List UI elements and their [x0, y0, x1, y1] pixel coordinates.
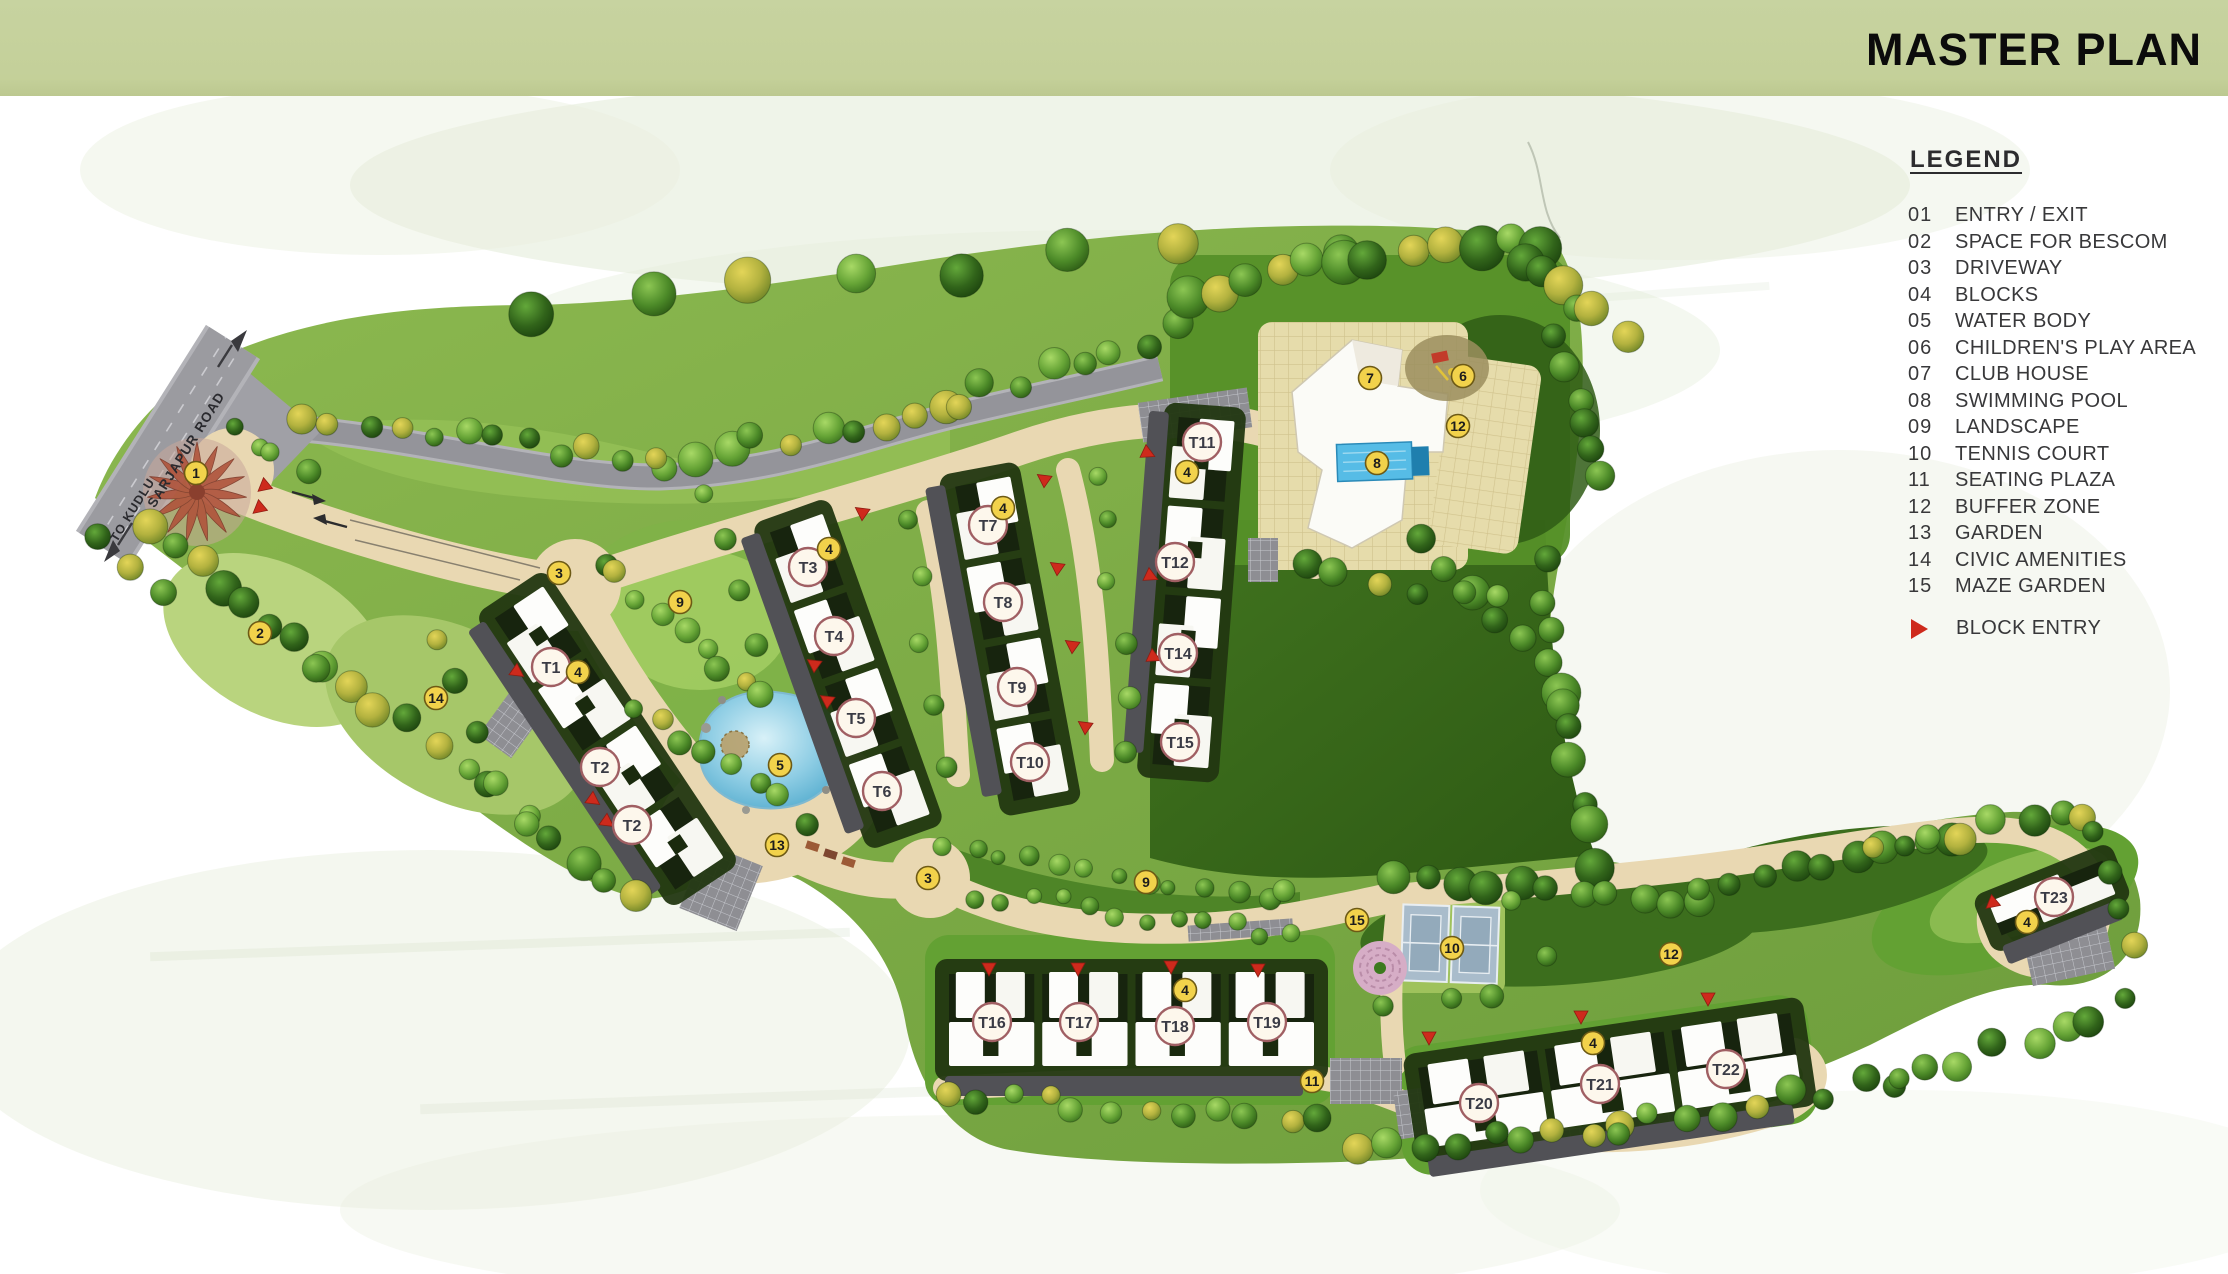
tree: [1412, 1134, 1439, 1161]
tree: [1542, 324, 1566, 348]
legend-item-number: 06: [1908, 337, 1955, 360]
legend-item: 11SEATING PLAZA: [1908, 469, 2223, 496]
block-entry-arrow-icon: [1911, 619, 1928, 639]
tower-marker-T19: T19: [1248, 1003, 1286, 1041]
tree: [1813, 1089, 1834, 1110]
tree: [425, 428, 443, 446]
tree: [843, 421, 865, 443]
svg-text:T2: T2: [591, 760, 610, 777]
svg-text:11: 11: [1305, 1073, 1320, 1089]
tree: [1398, 235, 1429, 266]
tree: [1097, 573, 1114, 590]
tree: [704, 656, 729, 681]
tree: [1046, 228, 1089, 271]
tree: [737, 422, 763, 448]
legend-item-number: 11: [1908, 469, 1955, 492]
tree: [1158, 224, 1198, 264]
tower-marker-T6: T6: [863, 772, 901, 810]
legend-item-number: 14: [1908, 549, 1955, 572]
tree: [1105, 908, 1123, 926]
tree: [466, 721, 488, 743]
legend-item-number: 15: [1908, 575, 1955, 598]
svg-text:7: 7: [1366, 370, 1374, 386]
tree: [117, 554, 143, 580]
svg-text:T14: T14: [1164, 646, 1192, 663]
tree: [1853, 1064, 1880, 1091]
tree: [668, 731, 692, 755]
tree: [1140, 915, 1156, 931]
tree: [1075, 859, 1093, 877]
svg-text:T11: T11: [1189, 435, 1216, 452]
tree: [1010, 377, 1031, 398]
tree: [361, 416, 382, 437]
tree: [965, 369, 993, 397]
tree: [1754, 865, 1777, 888]
tree: [1469, 871, 1503, 905]
tree: [1058, 1098, 1082, 1122]
legend-item: 15MAZE GARDEN: [1908, 575, 2223, 602]
tree: [612, 450, 633, 471]
tree: [873, 414, 900, 441]
legend-item: 04BLOCKS: [1908, 284, 2223, 311]
tree: [393, 704, 421, 732]
tree: [1480, 984, 1504, 1008]
tree: [1142, 1102, 1160, 1120]
header-band: MASTER PLAN: [0, 0, 2228, 96]
numbered-marker-8: 8: [1366, 452, 1389, 475]
tree: [1487, 585, 1509, 607]
tower-marker-T10: T10: [1011, 743, 1049, 781]
maze-garden: [1353, 941, 1407, 995]
tree: [1510, 625, 1536, 651]
tree: [1637, 1103, 1658, 1124]
tree: [1273, 880, 1295, 902]
tree: [1118, 687, 1141, 710]
tree: [692, 740, 716, 764]
tree: [1502, 891, 1521, 910]
legend-item: 01ENTRY / EXIT: [1908, 204, 2223, 231]
svg-text:10: 10: [1444, 940, 1460, 956]
tree: [992, 895, 1009, 912]
numbered-marker-12: 12: [1447, 415, 1470, 438]
legend-item-label: BUFFER ZONE: [1955, 496, 2101, 519]
tower-marker-T17: T17: [1060, 1003, 1098, 1041]
tree: [2108, 898, 2129, 919]
tree: [653, 709, 674, 730]
tree: [909, 634, 928, 653]
legend-item-label: WATER BODY: [1955, 310, 2091, 333]
svg-text:4: 4: [1181, 982, 1189, 998]
svg-text:8: 8: [1373, 455, 1381, 471]
numbered-marker-11: 11: [1301, 1070, 1324, 1093]
tree: [813, 412, 844, 443]
tree: [228, 587, 259, 618]
tree: [2122, 932, 2148, 958]
numbered-marker-13: 13: [766, 834, 789, 857]
legend-item-number: 07: [1908, 363, 1955, 386]
tower-marker-T18: T18: [1156, 1007, 1194, 1045]
tree: [1042, 1086, 1060, 1104]
svg-text:12: 12: [1450, 418, 1466, 434]
numbered-marker-6: 6: [1452, 365, 1475, 388]
tree: [1342, 1134, 1373, 1165]
svg-text:4: 4: [1183, 464, 1191, 480]
tree: [1593, 881, 1617, 905]
svg-text:3: 3: [924, 870, 932, 886]
tree: [1657, 891, 1684, 918]
tree: [946, 394, 971, 419]
tree: [536, 826, 560, 850]
tree: [355, 693, 389, 727]
tree: [1049, 854, 1070, 875]
tree: [1442, 988, 1462, 1008]
svg-text:9: 9: [676, 594, 684, 610]
tower-marker-T12: T12: [1156, 543, 1194, 581]
tree: [1944, 823, 1976, 855]
tree: [1613, 321, 1644, 352]
tree: [261, 443, 279, 461]
svg-text:15: 15: [1349, 912, 1365, 928]
tree: [1089, 467, 1107, 485]
tower-marker-T9: T9: [998, 668, 1036, 706]
svg-text:T10: T10: [1016, 755, 1044, 772]
tree: [2115, 988, 2135, 1008]
numbered-marker-9: 9: [1135, 871, 1158, 894]
legend-item: 10TENNIS COURT: [1908, 443, 2223, 470]
legend-item-label: CHILDREN'S PLAY AREA: [1955, 337, 2196, 360]
svg-text:T23: T23: [2040, 890, 2068, 907]
tree: [1607, 1123, 1630, 1146]
legend-item-number: 05: [1908, 310, 1955, 333]
svg-text:13: 13: [769, 837, 785, 853]
numbered-marker-12: 12: [1660, 943, 1683, 966]
tree: [837, 254, 876, 293]
master-plan-page: T1T2T2T3T4T5T6T7T8T9T10T11T12T14T15T16T1…: [0, 0, 2228, 1274]
tree: [573, 433, 599, 459]
tree: [1533, 876, 1558, 901]
tree: [1976, 805, 2006, 835]
tree: [1303, 1104, 1331, 1132]
tree: [745, 634, 768, 657]
tree: [715, 528, 737, 550]
tree: [1674, 1105, 1700, 1131]
tree: [625, 591, 644, 610]
tree: [1631, 885, 1659, 913]
tree: [603, 560, 626, 583]
svg-text:T1: T1: [542, 660, 561, 677]
numbered-marker-4: 4: [567, 661, 590, 684]
tree: [509, 292, 554, 337]
svg-text:4: 4: [2023, 914, 2031, 930]
tree: [1172, 1104, 1196, 1128]
tree: [1808, 854, 1834, 880]
tree: [1585, 461, 1614, 490]
tree: [1194, 912, 1211, 929]
legend-block-entry-row: BLOCK ENTRY: [1908, 615, 2223, 643]
legend-item-number: 12: [1908, 496, 1955, 519]
tree: [1530, 590, 1555, 615]
tower-marker-T11: T11: [1183, 423, 1221, 461]
legend-item-label: CLUB HOUSE: [1955, 363, 2089, 386]
tree: [902, 403, 927, 428]
tree: [1453, 581, 1476, 604]
svg-text:5: 5: [776, 757, 784, 773]
tree: [966, 891, 984, 909]
numbered-marker-14: 14: [425, 687, 448, 710]
tree: [1570, 805, 1607, 842]
tree: [1746, 1095, 1769, 1118]
tower-marker-T15: T15: [1161, 723, 1199, 761]
tree: [1574, 291, 1608, 325]
numbered-marker-4: 4: [818, 538, 841, 561]
tree: [721, 754, 742, 775]
legend-item-number: 09: [1908, 416, 1955, 439]
legend-item-number: 04: [1908, 284, 1955, 307]
tower-marker-T4: T4: [815, 617, 853, 655]
tree: [1718, 873, 1740, 895]
legend-item-label: BLOCKS: [1955, 284, 2039, 307]
legend-item-label: SPACE FOR BESCOM: [1955, 231, 2168, 254]
svg-text:T4: T4: [825, 629, 844, 646]
numbered-marker-4: 4: [992, 497, 1015, 520]
tree: [484, 771, 509, 796]
tree: [1538, 617, 1564, 643]
legend-item: 08SWIMMING POOL: [1908, 390, 2223, 417]
tree: [1282, 1110, 1304, 1132]
tree: [936, 1082, 961, 1107]
tree: [1171, 911, 1187, 927]
legend-item: 02SPACE FOR BESCOM: [1908, 231, 2223, 258]
tree: [632, 272, 676, 316]
legend-item-label: SWIMMING POOL: [1955, 390, 2128, 413]
svg-text:T9: T9: [1008, 680, 1027, 697]
legend-item-label: GARDEN: [1955, 522, 2043, 545]
svg-text:T16: T16: [978, 1015, 1006, 1032]
tree: [1540, 1118, 1564, 1142]
legend-item: 06CHILDREN'S PLAY AREA: [1908, 337, 2223, 364]
tree: [1348, 241, 1387, 280]
tree: [695, 485, 713, 503]
numbered-marker-9: 9: [669, 591, 692, 614]
tree: [1373, 996, 1393, 1016]
tree: [1889, 1068, 1909, 1088]
legend-item-label: CIVIC AMENITIES: [1955, 549, 2127, 572]
svg-text:9: 9: [1142, 874, 1150, 890]
tree: [1912, 1054, 1938, 1080]
tree: [287, 404, 317, 434]
tree: [1074, 352, 1097, 375]
legend-panel: LEGEND 01ENTRY / EXIT02SPACE FOR BESCOM0…: [1908, 146, 2223, 643]
svg-text:12: 12: [1663, 946, 1679, 962]
svg-text:T22: T22: [1712, 1062, 1740, 1079]
tree: [1100, 1102, 1121, 1123]
tree: [1196, 879, 1214, 897]
tree: [1417, 865, 1441, 889]
tree: [1551, 742, 1586, 777]
legend-title: LEGEND: [1910, 146, 2223, 174]
numbered-marker-4: 4: [1582, 1032, 1605, 1055]
tower-marker-T14: T14: [1159, 634, 1197, 672]
tree: [1229, 264, 1262, 297]
tree: [991, 851, 1005, 865]
svg-text:6: 6: [1459, 368, 1467, 384]
svg-text:T20: T20: [1465, 1096, 1493, 1113]
legend-item-label: ENTRY / EXIT: [1955, 204, 2088, 227]
svg-text:T5: T5: [847, 711, 866, 728]
svg-text:4: 4: [825, 541, 833, 557]
tree: [1507, 1127, 1533, 1153]
tree: [1407, 584, 1428, 605]
tree: [1687, 878, 1709, 900]
tree: [2098, 860, 2122, 884]
tree: [1537, 946, 1557, 966]
numbered-marker-2: 2: [249, 622, 272, 645]
tree: [620, 880, 652, 912]
tree: [426, 732, 453, 759]
tree: [1556, 714, 1581, 739]
tree: [646, 448, 667, 469]
legend-item-label: SEATING PLAZA: [1955, 469, 2115, 492]
tree: [1116, 633, 1138, 655]
legend-item: 05WATER BODY: [1908, 310, 2223, 337]
tree: [729, 580, 750, 601]
tree: [1290, 243, 1323, 276]
tree: [936, 757, 957, 778]
tree: [1293, 549, 1322, 578]
svg-text:T19: T19: [1253, 1015, 1281, 1032]
legend-item-number: 13: [1908, 522, 1955, 545]
svg-text:T12: T12: [1161, 555, 1189, 572]
tree: [964, 1090, 988, 1114]
tree: [1942, 1052, 1971, 1081]
tower-marker-T21: T21: [1581, 1065, 1619, 1103]
tree: [2025, 1028, 2056, 1059]
tower-marker-T5: T5: [837, 699, 875, 737]
tree: [1578, 436, 1604, 462]
tree: [1368, 573, 1391, 596]
tree: [457, 418, 483, 444]
numbered-marker-4: 4: [1176, 461, 1199, 484]
tree: [188, 545, 219, 576]
svg-text:3: 3: [555, 565, 563, 581]
tree: [1099, 511, 1116, 528]
tree: [392, 418, 413, 439]
tree: [297, 459, 321, 483]
numbered-marker-10: 10: [1441, 937, 1464, 960]
numbered-marker-3: 3: [917, 867, 940, 890]
legend-item: 13GARDEN: [1908, 522, 2223, 549]
tree: [1318, 558, 1347, 587]
tree: [1445, 1134, 1471, 1160]
tree: [940, 254, 983, 297]
tree: [699, 639, 718, 658]
svg-text:2: 2: [256, 625, 264, 641]
tree: [924, 695, 944, 715]
tree: [2073, 1007, 2104, 1038]
tree: [2019, 805, 2050, 836]
legend-item-number: 02: [1908, 231, 1955, 254]
tree: [1027, 889, 1042, 904]
tree: [780, 435, 801, 456]
numbered-marker-7: 7: [1359, 367, 1382, 390]
tree: [1115, 741, 1137, 763]
tree: [624, 700, 642, 718]
tree: [1081, 897, 1099, 915]
tree: [1863, 837, 1884, 858]
tree: [150, 579, 176, 605]
svg-text:1: 1: [192, 465, 200, 481]
legend-item-number: 03: [1908, 257, 1955, 280]
legend-item-label: TENNIS COURT: [1955, 443, 2109, 466]
svg-text:T7: T7: [979, 518, 998, 535]
tower-marker-T8: T8: [984, 583, 1022, 621]
legend-item: 07CLUB HOUSE: [1908, 363, 2223, 390]
tree: [675, 618, 700, 643]
numbered-marker-15: 15: [1346, 909, 1369, 932]
tree: [1005, 1084, 1024, 1103]
svg-text:14: 14: [428, 690, 444, 706]
tree: [280, 623, 309, 652]
tower-marker-T16: T16: [973, 1003, 1011, 1041]
tree: [482, 425, 503, 446]
tree: [302, 654, 330, 682]
svg-text:4: 4: [1589, 1035, 1597, 1051]
tree: [1535, 546, 1561, 572]
legend-item-label: MAZE GARDEN: [1955, 575, 2106, 598]
svg-text:T2: T2: [623, 818, 642, 835]
tree: [899, 510, 918, 529]
tree: [1916, 825, 1940, 849]
tree: [678, 442, 713, 477]
site-plan-drawing: T1T2T2T3T4T5T6T7T8T9T10T11T12T14T15T16T1…: [0, 0, 2228, 1274]
tree: [1161, 881, 1175, 895]
tree: [1978, 1028, 2006, 1056]
tree: [1482, 607, 1508, 633]
legend-item-number: 08: [1908, 390, 1955, 413]
legend-item: 12BUFFER ZONE: [1908, 496, 2223, 523]
tree: [1549, 352, 1579, 382]
tree: [1138, 335, 1162, 359]
tower-marker-T20: T20: [1460, 1084, 1498, 1122]
legend-item-number: 01: [1908, 204, 1955, 227]
legend-block-entry-label: BLOCK ENTRY: [1956, 617, 2101, 640]
tree: [1019, 846, 1039, 866]
tree: [163, 533, 188, 558]
tree: [1486, 1121, 1509, 1144]
tree: [1229, 913, 1247, 931]
tree: [1232, 1103, 1257, 1128]
tree: [796, 813, 819, 836]
tree: [519, 428, 539, 448]
legend-item-number: 10: [1908, 443, 1955, 466]
tower-marker-T2: T2: [581, 748, 619, 786]
tree: [1096, 341, 1120, 365]
tower-marker-T1: T1: [532, 648, 570, 686]
legend-item: 03DRIVEWAY: [1908, 257, 2223, 284]
tree: [970, 840, 988, 858]
tree: [725, 257, 771, 303]
tree: [226, 418, 243, 435]
tower-marker-T22: T22: [1707, 1050, 1745, 1088]
numbered-marker-5: 5: [769, 754, 792, 777]
tree: [1372, 1128, 1402, 1158]
tree: [1282, 924, 1300, 942]
legend-item-label: LANDSCAPE: [1955, 416, 2080, 439]
tree: [1535, 649, 1563, 677]
legend-items: 01ENTRY / EXIT02SPACE FOR BESCOM03DRIVEW…: [1908, 204, 2223, 602]
tree: [913, 567, 932, 586]
tree: [316, 413, 338, 435]
